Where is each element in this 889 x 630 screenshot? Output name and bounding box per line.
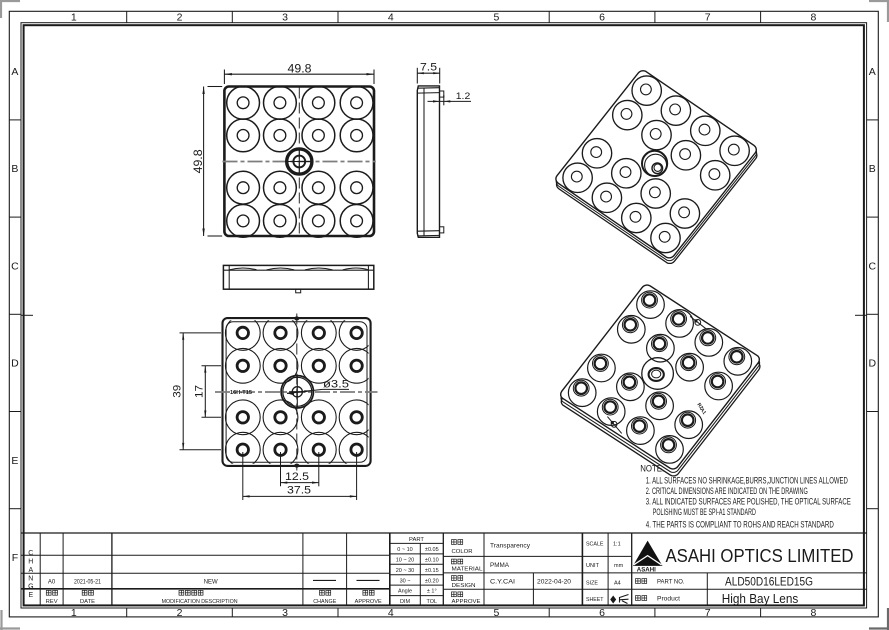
svg-text:C: C [869,260,877,272]
svg-text:E: E [28,592,33,599]
svg-text:2: 2 [177,607,183,619]
svg-text:DATE: DATE [80,599,95,605]
svg-text:PMMA: PMMA [490,563,509,569]
svg-text:30 ~: 30 ~ [400,578,411,584]
svg-text:2: 2 [177,12,183,24]
svg-text:0 ~ 10: 0 ~ 10 [397,547,412,553]
svg-text:10 ~ 20: 10 ~ 20 [396,557,415,563]
svg-text:6: 6 [599,607,605,619]
svg-text:49.8: 49.8 [288,64,312,76]
svg-text:SCALE: SCALE [586,542,604,548]
svg-text:APPROVE: APPROVE [452,599,481,605]
svg-text:A4: A4 [614,581,621,587]
svg-text:16H-T15: 16H-T15 [230,390,252,396]
svg-text:PART: PART [409,537,425,543]
svg-text:±0.05: ±0.05 [425,547,439,553]
svg-text:B: B [869,163,876,175]
svg-text:REV: REV [46,599,58,605]
svg-text:± 1°: ± 1° [427,589,437,595]
svg-text:4: 4 [388,12,394,24]
svg-text:D: D [869,358,877,370]
svg-text:17: 17 [193,385,205,398]
svg-text:3: 3 [282,607,288,619]
svg-text:1: 1 [71,607,77,619]
svg-text:2021-05-21: 2021-05-21 [74,580,102,586]
svg-text:A0: A0 [48,580,56,586]
svg-text:8: 8 [810,12,816,24]
svg-text:SIZE: SIZE [586,581,598,587]
svg-text:Product: Product [657,596,680,602]
svg-text:5: 5 [493,12,499,24]
svg-text:Angle: Angle [398,589,412,595]
svg-text:CHANGE: CHANGE [313,599,336,605]
svg-text:ALD50D16LED15G: ALD50D16LED15G [725,576,813,588]
svg-text:5: 5 [493,607,499,619]
svg-text:APPROVE: APPROVE [355,599,382,605]
svg-text:4: 4 [388,607,394,619]
svg-text:4. THE PARTS IS COMPLIANT TO R: 4. THE PARTS IS COMPLIANT TO ROHS AND RE… [646,520,834,530]
svg-text:B: B [11,163,18,175]
svg-text:MATERIAL: MATERIAL [452,566,483,572]
svg-text:MODIFICATION DESCRIPTION: MODIFICATION DESCRIPTION [162,599,238,605]
svg-text:DIM: DIM [400,599,411,605]
svg-text:POLISHING MUST BE SPI-A1 STAND: POLISHING MUST BE SPI-A1 STANDARD [653,507,756,517]
svg-text:3. ALL INDICATED SURFACES ARE: 3. ALL INDICATED SURFACES ARE POLISHED, … [646,497,851,507]
svg-text:±0.15: ±0.15 [425,568,439,574]
svg-text:±0.20: ±0.20 [425,578,439,584]
svg-text:2. CRITICAL DIMENSIONS ARE IND: 2. CRITICAL DIMENSIONS ARE INDICATED ON … [646,486,808,496]
svg-text:ASAHI: ASAHI [637,567,656,574]
svg-text:A: A [869,66,876,78]
svg-text:37.5: 37.5 [287,485,311,497]
svg-text:TOL: TOL [426,599,437,605]
svg-text:1:1: 1:1 [613,542,621,548]
svg-text:1: 1 [71,12,77,24]
svg-text:SHEET: SHEET [586,597,604,603]
svg-text:1.2: 1.2 [456,91,471,102]
svg-text:7: 7 [705,12,711,24]
svg-text:NOTE:: NOTE: [640,463,664,473]
svg-text:49.8: 49.8 [193,149,205,173]
svg-text:H: H [28,558,33,565]
svg-text:6: 6 [599,12,605,24]
svg-text:G: G [28,584,33,591]
svg-text:3: 3 [282,12,288,24]
svg-text:DESIGN: DESIGN [452,583,476,589]
svg-text:20 ~ 30: 20 ~ 30 [396,568,415,574]
svg-text:C.Y.CAI: C.Y.CAI [490,579,515,585]
svg-text:UNIT: UNIT [586,563,600,569]
svg-text:High Bay Lens: High Bay Lens [722,592,799,606]
svg-text:N: N [28,575,33,582]
svg-text:±0.10: ±0.10 [425,557,439,563]
svg-text:1. ALL SURFACES NO SHRINKAGE,B: 1. ALL SURFACES NO SHRINKAGE,BURRS,JUNCT… [646,476,848,486]
svg-text:7: 7 [705,607,711,619]
svg-text:C: C [11,260,19,272]
svg-text:12.5: 12.5 [285,471,309,483]
svg-text:2022-04-20: 2022-04-20 [537,579,572,585]
svg-text:NEW: NEW [204,580,218,586]
svg-text:7.5: 7.5 [420,62,437,74]
svg-text:COLOR: COLOR [452,549,473,555]
svg-text:Transparency: Transparency [490,543,530,549]
svg-text:ASAHI OPTICS LIMITED: ASAHI OPTICS LIMITED [666,546,854,566]
svg-text:D: D [11,358,19,370]
svg-text:39: 39 [171,385,183,398]
svg-text:C: C [28,550,33,557]
svg-text:A: A [28,567,33,574]
svg-text:ø3.5: ø3.5 [323,379,349,391]
svg-text:E: E [11,455,18,467]
svg-text:F: F [12,552,18,564]
svg-text:PART NO.: PART NO. [657,579,685,585]
svg-text:mm: mm [614,563,624,569]
svg-text:A: A [11,66,18,78]
svg-text:8: 8 [810,607,816,619]
